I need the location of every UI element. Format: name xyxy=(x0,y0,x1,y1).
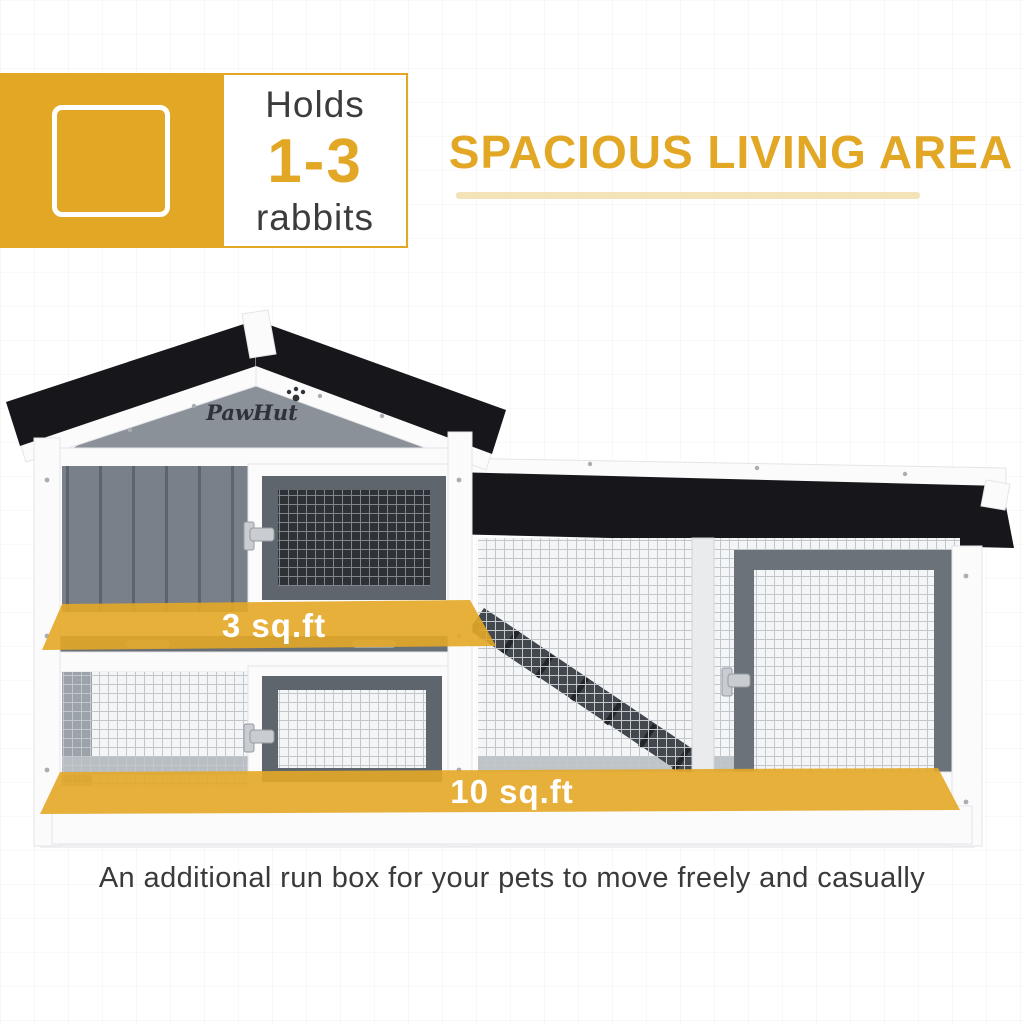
hutch-section: PawHut xyxy=(6,310,506,846)
run-area-label: 10 sq.ft xyxy=(450,773,574,810)
product-infographic: Holds 1-3 rabbits SPACIOUS LIVING AREA xyxy=(0,0,1024,1024)
run-door-mesh xyxy=(754,570,934,776)
upper-area-label: 3 sq.ft xyxy=(222,607,326,644)
run-divider-post xyxy=(692,538,714,776)
run-door xyxy=(722,550,954,798)
caption: An additional run box for your pets to m… xyxy=(0,862,1024,895)
pawhut-logo: PawHut xyxy=(205,400,298,425)
upper-door xyxy=(244,464,460,610)
run-roof-end-bracket xyxy=(981,480,1010,510)
run-door-frame-top xyxy=(734,550,954,570)
run-door-frame-right xyxy=(934,550,954,798)
lower-door-mesh xyxy=(278,690,426,768)
upper-plank-panel xyxy=(62,466,248,612)
upper-door-mesh xyxy=(278,490,430,586)
